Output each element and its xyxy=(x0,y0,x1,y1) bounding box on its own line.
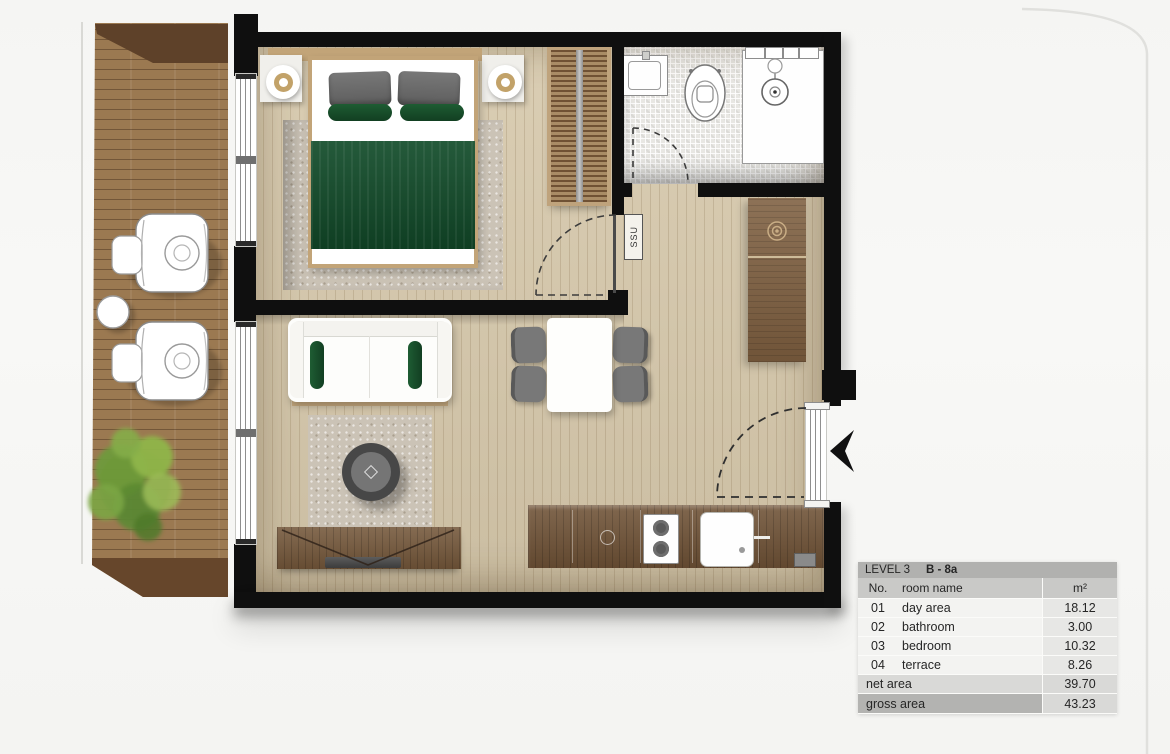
window-cap xyxy=(236,241,256,246)
kitchen-faucet xyxy=(754,536,770,539)
row-name: terrace xyxy=(898,658,1042,672)
lamp-ring xyxy=(274,73,293,92)
row-name: bedroom xyxy=(898,639,1042,653)
sofa-arm-right xyxy=(437,322,451,398)
sofa xyxy=(288,318,452,402)
row-no: 03 xyxy=(858,639,898,653)
sofa-seat-split xyxy=(369,336,370,398)
lamp-core xyxy=(501,78,510,87)
bedside-lamp-right xyxy=(488,65,522,99)
pillow-right xyxy=(397,71,460,107)
window-cap xyxy=(236,539,256,544)
window-mullion xyxy=(236,429,256,437)
level-label: LEVEL 3 xyxy=(865,564,910,576)
gross-area-value: 43.23 xyxy=(1042,694,1117,713)
counter-divider xyxy=(692,510,693,563)
col-area: m² xyxy=(1042,578,1117,598)
lamp-core xyxy=(279,78,288,87)
bolster-right xyxy=(400,104,464,121)
bedside-lamp-left xyxy=(266,65,300,99)
dining-chair xyxy=(612,365,648,402)
tv xyxy=(325,557,401,568)
row-area: 18.12 xyxy=(1042,599,1117,617)
living-window xyxy=(236,322,256,544)
table-row: 02 bathroom 3.00 xyxy=(858,618,1117,637)
dining-chair xyxy=(510,365,546,402)
entry-door-frame xyxy=(806,406,826,502)
row-no: 04 xyxy=(858,658,898,672)
lamp-ring xyxy=(496,73,515,92)
table-row: 04 terrace 8.26 xyxy=(858,656,1117,675)
col-no: No. xyxy=(858,581,898,595)
area-table-header: LEVEL 3 B - 8a xyxy=(858,562,1117,578)
gross-area-label: gross area xyxy=(858,697,1042,711)
window-mullion xyxy=(236,156,256,164)
doorframe-cap xyxy=(804,500,830,508)
bathroom-sink xyxy=(621,55,668,96)
wall-bedroom-south xyxy=(252,300,624,315)
sofa-bolster-left xyxy=(310,341,324,389)
counter-divider xyxy=(640,510,641,563)
terrace-edge-line xyxy=(81,22,83,564)
entry-pier xyxy=(822,370,856,400)
kitchen-sink xyxy=(700,512,754,567)
col-room-name: room name xyxy=(898,581,1042,595)
closet-divider xyxy=(748,256,806,258)
hall-closet xyxy=(748,198,806,362)
shaft-label: SSU xyxy=(629,226,639,248)
terrace-deck xyxy=(86,20,228,600)
shaft-label-box: SSU xyxy=(624,214,643,260)
sofa-arm-left xyxy=(290,322,304,398)
stove xyxy=(643,514,679,564)
column-header-row: No. room name m² xyxy=(858,578,1117,599)
burner xyxy=(653,520,669,536)
sofa-backrest xyxy=(292,321,448,337)
net-area-label: net area xyxy=(858,677,1042,691)
sink-basin xyxy=(628,61,661,90)
wall-bottom xyxy=(234,592,841,608)
coffee-table xyxy=(342,443,400,501)
wall-top xyxy=(234,32,841,47)
bed xyxy=(308,56,478,268)
row-area: 8.26 xyxy=(1042,656,1117,674)
area-table: LEVEL 3 B - 8a No. room name m² 01 day a… xyxy=(858,562,1117,714)
dining-table xyxy=(547,318,612,412)
net-area-row: net area 39.70 xyxy=(858,675,1117,694)
pillow-left xyxy=(328,71,391,107)
bedroom-door-leaf xyxy=(613,215,616,293)
sink-drain xyxy=(739,547,745,553)
floor-plan-photo: SSU xyxy=(0,0,1170,754)
window-cap xyxy=(236,322,256,327)
entrance-arrow-icon xyxy=(830,430,854,472)
row-no: 01 xyxy=(858,601,898,615)
shower-valve-bar xyxy=(745,47,819,59)
shower xyxy=(742,50,824,164)
wall-bath-bottom-left xyxy=(616,183,632,197)
row-no: 02 xyxy=(858,620,898,634)
row-area: 3.00 xyxy=(1042,618,1117,636)
gross-area-row: gross area 43.23 xyxy=(858,694,1117,714)
doorframe-cap xyxy=(804,402,830,410)
wall-bedroom-door-post xyxy=(608,290,628,315)
sofa-bolster-right xyxy=(408,341,422,389)
coffee-table-top xyxy=(351,452,391,492)
sink-tap xyxy=(642,51,650,60)
counter-divider xyxy=(572,510,573,563)
wardrobe-rail xyxy=(576,50,583,202)
bedroom-window xyxy=(236,74,256,246)
coffee-table-glyph xyxy=(364,465,378,479)
row-area: 10.32 xyxy=(1042,637,1117,655)
row-name: bathroom xyxy=(898,620,1042,634)
dining-chair xyxy=(510,326,546,363)
table-row: 03 bedroom 10.32 xyxy=(858,637,1117,656)
burner xyxy=(653,541,669,557)
wall-right-upper xyxy=(824,32,841,370)
dining-chair xyxy=(612,326,648,363)
unit-label: B - 8a xyxy=(926,564,957,576)
wall-right-lower xyxy=(824,502,841,608)
net-area-value: 39.70 xyxy=(1042,675,1117,693)
burner-control xyxy=(600,530,615,545)
bolster-left xyxy=(328,104,392,121)
row-name: day area xyxy=(898,601,1042,615)
window-cap xyxy=(236,74,256,79)
table-row: 01 day area 18.12 xyxy=(858,599,1117,618)
counter-end-unit xyxy=(794,553,816,567)
bed-blanket xyxy=(311,141,475,249)
wall-bath-bottom-right xyxy=(698,183,824,197)
wall-corner-topleft xyxy=(234,14,258,76)
